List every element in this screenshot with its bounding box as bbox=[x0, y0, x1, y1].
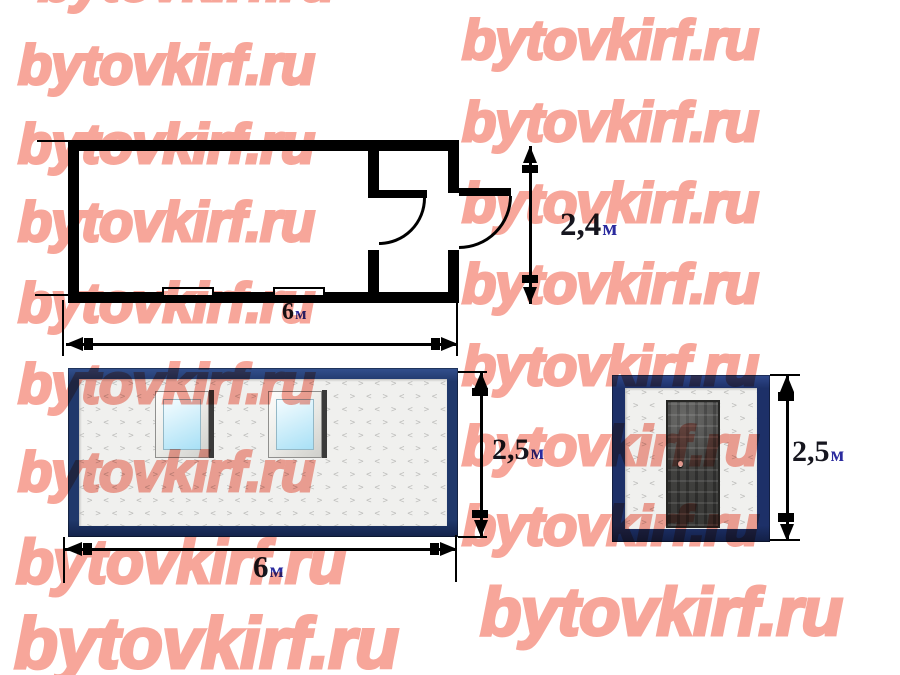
side-height-arrow-bottom bbox=[780, 524, 794, 541]
side-height-tick-bottom bbox=[778, 513, 794, 522]
side-height-tick-top bbox=[778, 392, 794, 401]
side-height-arrow-top bbox=[780, 375, 794, 392]
side-elevation-door bbox=[666, 400, 720, 528]
side-height-label: 2,5м bbox=[792, 437, 844, 467]
side-height-value: 2,5 bbox=[792, 435, 830, 468]
side-height-unit: м bbox=[831, 444, 845, 466]
door-handle bbox=[678, 461, 683, 467]
drawing-canvas: 6м 2,4м <><><><><><><><><><><><><><><><>… bbox=[0, 0, 900, 675]
side-elevation-view: <><><><><><><><><><><><><><><><><><><><>… bbox=[0, 0, 900, 675]
